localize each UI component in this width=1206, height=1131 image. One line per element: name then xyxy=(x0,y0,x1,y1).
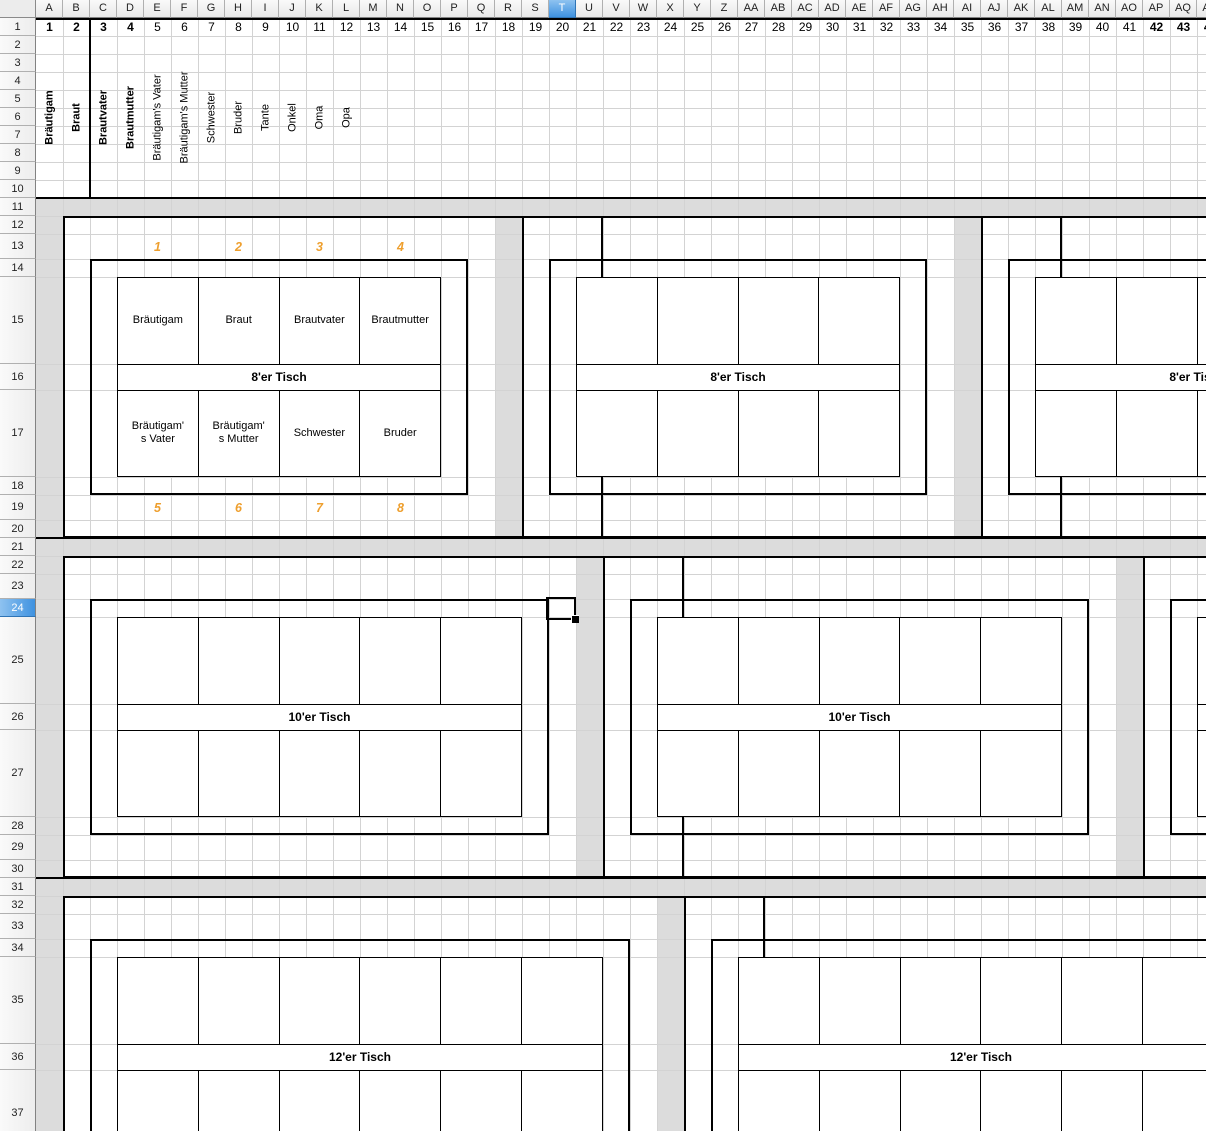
row1-cell-L[interactable]: 12 xyxy=(333,18,360,36)
seat-cell[interactable] xyxy=(1198,278,1206,364)
seat-cell[interactable] xyxy=(441,1071,522,1131)
fill-handle[interactable] xyxy=(571,615,579,623)
seat-cell[interactable] xyxy=(900,731,981,817)
seat-cell[interactable] xyxy=(360,1071,441,1131)
seat-cell[interactable] xyxy=(739,278,820,364)
row-header-35[interactable]: 35 xyxy=(0,957,36,1044)
row-header-31[interactable]: 31 xyxy=(0,878,36,896)
column-header-Z[interactable]: Z xyxy=(711,0,738,18)
row1-cell-C[interactable]: 3 xyxy=(90,18,117,36)
row-header-11[interactable]: 11 xyxy=(0,198,36,216)
seat-cell[interactable] xyxy=(199,1071,280,1131)
seat-cell[interactable] xyxy=(441,731,521,817)
seat-row-bottom xyxy=(118,731,521,817)
row1-cell-AM[interactable]: 39 xyxy=(1062,18,1089,36)
aisle-area xyxy=(36,198,63,1131)
row-header-36[interactable]: 36 xyxy=(0,1044,36,1070)
seat-cell[interactable] xyxy=(1143,958,1206,1044)
row1-cell-AQ[interactable]: 43 xyxy=(1170,18,1197,36)
row-header-5[interactable]: 5 xyxy=(0,90,36,108)
row1-cell-AC[interactable]: 29 xyxy=(792,18,819,36)
guest-column-label[interactable]: Schwester xyxy=(198,36,225,198)
seat-cell[interactable] xyxy=(522,958,602,1044)
seat-row-bottom xyxy=(577,391,899,477)
seat-cell[interactable] xyxy=(1117,278,1198,364)
row-header-16[interactable]: 16 xyxy=(0,364,36,390)
row-header-20[interactable]: 20 xyxy=(0,520,36,538)
column-header-F[interactable]: F xyxy=(171,0,198,18)
column-header-AI[interactable]: AI xyxy=(954,0,981,18)
seat-cell[interactable]: Brautmutter xyxy=(360,278,440,364)
seat-cell[interactable] xyxy=(820,618,901,704)
column-header-AL[interactable]: AL xyxy=(1035,0,1062,18)
seat-row-top xyxy=(1036,278,1206,365)
guest-column-label[interactable]: Brautvater xyxy=(90,36,117,198)
seat-cell[interactable] xyxy=(1198,618,1206,704)
row1-cell-R[interactable]: 18 xyxy=(495,18,522,36)
row-header-29[interactable]: 29 xyxy=(0,835,36,860)
column-header-D[interactable]: D xyxy=(117,0,144,18)
row-header-8[interactable]: 8 xyxy=(0,144,36,162)
row1-cell-AE[interactable]: 31 xyxy=(846,18,873,36)
seat-row-bottom xyxy=(1036,391,1206,477)
seat-cell[interactable] xyxy=(739,1071,820,1131)
seat-cell[interactable] xyxy=(739,958,820,1044)
seat-cell[interactable] xyxy=(658,618,739,704)
seat-row-bottom xyxy=(739,1071,1206,1131)
column-header-L[interactable]: L xyxy=(333,0,360,18)
seat-cell[interactable] xyxy=(820,731,901,817)
seat-cell[interactable] xyxy=(819,391,899,477)
seat-cell[interactable]: Bräutigam' s Vater xyxy=(118,391,199,477)
row1-cell-S[interactable]: 19 xyxy=(522,18,549,36)
cell-cursor xyxy=(546,597,576,620)
seat-cell[interactable] xyxy=(658,391,739,477)
row1-cell-AO[interactable]: 41 xyxy=(1116,18,1143,36)
column-header-O[interactable]: O xyxy=(414,0,441,18)
guest-column-label[interactable]: Onkel xyxy=(279,36,306,198)
table-label[interactable]: 10'er Tisch xyxy=(658,705,1061,731)
row1-cell-W[interactable]: 23 xyxy=(630,18,657,36)
row-header-9[interactable]: 9 xyxy=(0,162,36,180)
row1-cell-H[interactable]: 8 xyxy=(225,18,252,36)
seat-cell[interactable] xyxy=(199,958,280,1044)
row-header-28[interactable]: 28 xyxy=(0,817,36,835)
seat-cell[interactable] xyxy=(981,618,1061,704)
spreadsheet-app: BräutigamBrautBrautvaterBrautmutter8'er … xyxy=(0,0,1206,1131)
seat-cell[interactable] xyxy=(1062,1071,1143,1131)
seat-cell[interactable] xyxy=(199,618,280,704)
row1-cell-T[interactable]: 20 xyxy=(549,18,576,36)
column-header-AR[interactable]: AR xyxy=(1197,0,1206,18)
seat-cell[interactable] xyxy=(280,731,361,817)
row-header-25[interactable]: 25 xyxy=(0,617,36,704)
column-header-AM[interactable]: AM xyxy=(1062,0,1089,18)
column-header-AD[interactable]: AD xyxy=(819,0,846,18)
aisle-area xyxy=(36,538,1206,556)
seat-row-top xyxy=(118,618,521,705)
row-header-19[interactable]: 19 xyxy=(0,495,36,520)
seat-cell[interactable]: Bräutigam' s Mutter xyxy=(199,391,280,477)
seat-cell[interactable] xyxy=(118,731,199,817)
column-header-K[interactable]: K xyxy=(306,0,333,18)
column-header-Y[interactable]: Y xyxy=(684,0,711,18)
row-header-21[interactable]: 21 xyxy=(0,538,36,556)
seat-cell[interactable] xyxy=(900,618,981,704)
seat-row-top: BräutigamBrautBrautvaterBrautmutter xyxy=(118,278,440,365)
row1-cell-AF[interactable]: 32 xyxy=(873,18,900,36)
table-core-2: 8'er Tisch xyxy=(576,277,900,477)
row1-cell-E[interactable]: 5 xyxy=(144,18,171,36)
row-header-34[interactable]: 34 xyxy=(0,939,36,957)
seat-row-bottom xyxy=(118,1071,602,1131)
seat-cell[interactable] xyxy=(1062,958,1143,1044)
column-header-C[interactable]: C xyxy=(90,0,117,18)
table-core-7: 12'er Tisch xyxy=(117,957,603,1131)
seat-cell[interactable] xyxy=(118,958,199,1044)
seat-cell[interactable]: Braut xyxy=(199,278,280,364)
row1-cell-AA[interactable]: 27 xyxy=(738,18,765,36)
column-header-E[interactable]: E xyxy=(144,0,171,18)
table-label[interactable]: 10'er Tisch xyxy=(118,705,521,731)
seat-row-top xyxy=(658,618,1061,705)
seat-cell[interactable] xyxy=(118,1071,199,1131)
column-header-M[interactable]: M xyxy=(360,0,387,18)
seat-cell[interactable] xyxy=(901,1071,982,1131)
row1-cell-AR[interactable]: 44 xyxy=(1197,18,1206,36)
seat-number[interactable]: 2 xyxy=(219,235,259,259)
column-header-AH[interactable]: AH xyxy=(927,0,954,18)
column-header-J[interactable]: J xyxy=(279,0,306,18)
row-header-13[interactable]: 13 xyxy=(0,234,36,259)
column-header-X[interactable]: X xyxy=(657,0,684,18)
row1-cell-AJ[interactable]: 36 xyxy=(981,18,1008,36)
table-label[interactable]: 8'er Tisch xyxy=(1036,365,1206,391)
row1-cell-V[interactable]: 22 xyxy=(603,18,630,36)
table-core-8: 12'er Tisch xyxy=(738,957,1206,1131)
column-header-H[interactable]: H xyxy=(225,0,252,18)
seat-row-bottom xyxy=(658,731,1061,817)
row1-cell-I[interactable]: 9 xyxy=(252,18,279,36)
row1-cell-N[interactable]: 14 xyxy=(387,18,414,36)
seat-cell[interactable] xyxy=(901,958,982,1044)
table-core-4: 10'er Tisch xyxy=(117,617,522,817)
seat-cell[interactable] xyxy=(739,731,820,817)
aisle-area xyxy=(36,878,1206,896)
column-header-S[interactable]: S xyxy=(522,0,549,18)
seat-cell[interactable] xyxy=(360,958,441,1044)
seat-cell[interactable] xyxy=(820,1071,901,1131)
column-header-V[interactable]: V xyxy=(603,0,630,18)
seat-cell[interactable] xyxy=(441,618,521,704)
row-header-3[interactable]: 3 xyxy=(0,54,36,72)
guest-column-label[interactable]: Bruder xyxy=(225,36,252,198)
row1-cell-B[interactable]: 2 xyxy=(63,18,90,36)
row-header-14[interactable]: 14 xyxy=(0,259,36,277)
seat-number[interactable]: 1 xyxy=(138,235,178,259)
table-core-6 xyxy=(1197,617,1206,817)
table-core-5: 10'er Tisch xyxy=(657,617,1062,817)
row1-cell-AD[interactable]: 30 xyxy=(819,18,846,36)
row-header-7[interactable]: 7 xyxy=(0,126,36,144)
seat-cell[interactable] xyxy=(739,618,820,704)
table-label[interactable] xyxy=(1198,705,1206,731)
seat-cell[interactable] xyxy=(981,1071,1062,1131)
seat-cell[interactable] xyxy=(360,731,441,817)
column-header-P[interactable]: P xyxy=(441,0,468,18)
seat-row-top xyxy=(739,958,1206,1045)
column-header-AQ[interactable]: AQ xyxy=(1170,0,1197,18)
seat-number[interactable]: 6 xyxy=(219,496,259,520)
seat-number[interactable]: 5 xyxy=(138,496,178,520)
seat-cell[interactable]: Bruder xyxy=(360,391,440,477)
row-header-10[interactable]: 10 xyxy=(0,180,36,198)
row-header-24[interactable]: 24 xyxy=(0,599,36,617)
column-header-G[interactable]: G xyxy=(198,0,225,18)
column-header-AN[interactable]: AN xyxy=(1089,0,1116,18)
seat-cell[interactable] xyxy=(577,278,658,364)
table-label[interactable]: 12'er Tisch xyxy=(739,1045,1206,1071)
row-header-30[interactable]: 30 xyxy=(0,860,36,878)
row1-cell-O[interactable]: 15 xyxy=(414,18,441,36)
row1-cell-AH[interactable]: 34 xyxy=(927,18,954,36)
aisle-area xyxy=(36,198,1206,216)
row1-cell-Z[interactable]: 26 xyxy=(711,18,738,36)
row1-cell-M[interactable]: 13 xyxy=(360,18,387,36)
row1-cell-AK[interactable]: 37 xyxy=(1008,18,1035,36)
seat-number[interactable]: 7 xyxy=(300,496,340,520)
row-header-18[interactable]: 18 xyxy=(0,477,36,495)
column-header-AO[interactable]: AO xyxy=(1116,0,1143,18)
row1-cell-Q[interactable]: 17 xyxy=(468,18,495,36)
row-header-37[interactable]: 37 xyxy=(0,1070,36,1131)
seat-cell[interactable] xyxy=(1198,731,1206,817)
seat-cell[interactable] xyxy=(658,731,739,817)
row-header-6[interactable]: 6 xyxy=(0,108,36,126)
row1-cell-AI[interactable]: 35 xyxy=(954,18,981,36)
guest-column-label[interactable]: Bräutigam's Vater xyxy=(144,36,171,198)
seat-cell[interactable] xyxy=(739,391,820,477)
row-header-26[interactable]: 26 xyxy=(0,704,36,730)
table-label[interactable]: 8'er Tisch xyxy=(118,365,440,391)
guest-column-label[interactable]: Bräutigam xyxy=(36,36,63,198)
column-header-N[interactable]: N xyxy=(387,0,414,18)
seat-number[interactable]: 8 xyxy=(381,496,421,520)
row-header-27[interactable]: 27 xyxy=(0,730,36,817)
row1-cell-K[interactable]: 11 xyxy=(306,18,333,36)
seat-cell[interactable] xyxy=(1036,278,1117,364)
row1-cell-U[interactable]: 21 xyxy=(576,18,603,36)
column-header-T[interactable]: T xyxy=(549,0,576,18)
column-header-AF[interactable]: AF xyxy=(873,0,900,18)
seat-number[interactable]: 4 xyxy=(381,235,421,259)
seat-cell[interactable] xyxy=(360,618,441,704)
row-header-1[interactable]: 1 xyxy=(0,18,36,36)
seat-cell[interactable] xyxy=(522,1071,602,1131)
row1-cell-X[interactable]: 24 xyxy=(657,18,684,36)
seat-row-top xyxy=(1198,618,1206,705)
row-header-22[interactable]: 22 xyxy=(0,556,36,574)
seat-cell[interactable]: Brautvater xyxy=(280,278,361,364)
column-header-AK[interactable]: AK xyxy=(1008,0,1035,18)
seat-cell[interactable] xyxy=(280,1071,361,1131)
guest-column-label[interactable]: Bräutigam's Mutter xyxy=(171,36,198,198)
seat-cell[interactable] xyxy=(819,278,899,364)
seat-row-top xyxy=(118,958,602,1045)
row-header-23[interactable]: 23 xyxy=(0,574,36,599)
column-header-AE[interactable]: AE xyxy=(846,0,873,18)
row1-cell-P[interactable]: 16 xyxy=(441,18,468,36)
row-header-32[interactable]: 32 xyxy=(0,896,36,914)
row-header-2[interactable]: 2 xyxy=(0,36,36,54)
seat-cell[interactable] xyxy=(1198,391,1206,477)
seat-cell[interactable] xyxy=(1143,1071,1206,1131)
column-header-Q[interactable]: Q xyxy=(468,0,495,18)
row1-cell-J[interactable]: 10 xyxy=(279,18,306,36)
column-header-R[interactable]: R xyxy=(495,0,522,18)
row-header-33[interactable]: 33 xyxy=(0,914,36,939)
table-label[interactable]: 12'er Tisch xyxy=(118,1045,602,1071)
seat-cell[interactable] xyxy=(1117,391,1198,477)
column-header-W[interactable]: W xyxy=(630,0,657,18)
seat-row-bottom: Bräutigam' s VaterBräutigam' s MutterSch… xyxy=(118,391,440,477)
row1-cell-AP[interactable]: 42 xyxy=(1143,18,1170,36)
row1-cell-AN[interactable]: 40 xyxy=(1089,18,1116,36)
row1-cell-AB[interactable]: 28 xyxy=(765,18,792,36)
seat-cell[interactable] xyxy=(658,278,739,364)
column-header-AA[interactable]: AA xyxy=(738,0,765,18)
row1-cell-G[interactable]: 7 xyxy=(198,18,225,36)
seat-cell[interactable] xyxy=(981,958,1062,1044)
seat-cell[interactable] xyxy=(280,958,361,1044)
column-header-AP[interactable]: AP xyxy=(1143,0,1170,18)
row1-cell-AL[interactable]: 38 xyxy=(1035,18,1062,36)
guest-column-label[interactable]: Oma xyxy=(306,36,333,198)
guest-column-label[interactable]: Tante xyxy=(252,36,279,198)
column-header-AB[interactable]: AB xyxy=(765,0,792,18)
row-header-17[interactable]: 17 xyxy=(0,390,36,477)
seat-cell[interactable] xyxy=(441,958,522,1044)
column-header-AC[interactable]: AC xyxy=(792,0,819,18)
column-header-U[interactable]: U xyxy=(576,0,603,18)
seat-cell[interactable] xyxy=(1036,391,1117,477)
select-all-corner[interactable] xyxy=(0,0,36,18)
seat-cell[interactable]: Bräutigam xyxy=(118,278,199,364)
seat-row-top xyxy=(577,278,899,365)
column-header-A[interactable]: A xyxy=(36,0,63,18)
row1-cell-AG[interactable]: 33 xyxy=(900,18,927,36)
row1-cell-Y[interactable]: 25 xyxy=(684,18,711,36)
seat-cell[interactable] xyxy=(280,618,361,704)
seat-cell[interactable]: Schwester xyxy=(280,391,361,477)
column-header-B[interactable]: B xyxy=(63,0,90,18)
row-header-4[interactable]: 4 xyxy=(0,72,36,90)
seat-cell[interactable] xyxy=(820,958,901,1044)
guest-column-label[interactable]: Opa xyxy=(333,36,360,198)
column-header-AJ[interactable]: AJ xyxy=(981,0,1008,18)
row1-cell-D[interactable]: 4 xyxy=(117,18,144,36)
seat-cell[interactable] xyxy=(118,618,199,704)
column-header-I[interactable]: I xyxy=(252,0,279,18)
guest-column-label[interactable]: Braut xyxy=(63,36,90,198)
row1-cell-F[interactable]: 6 xyxy=(171,18,198,36)
seat-cell[interactable] xyxy=(981,731,1061,817)
table-label[interactable]: 8'er Tisch xyxy=(577,365,899,391)
table-core-1: BräutigamBrautBrautvaterBrautmutter8'er … xyxy=(117,277,441,477)
table-core-3: 8'er Tisch xyxy=(1035,277,1206,477)
seat-cell[interactable] xyxy=(577,391,658,477)
row1-cell-A[interactable]: 1 xyxy=(36,18,63,36)
seat-number[interactable]: 3 xyxy=(300,235,340,259)
row-header-12[interactable]: 12 xyxy=(0,216,36,234)
column-header-AG[interactable]: AG xyxy=(900,0,927,18)
guest-column-label[interactable]: Brautmutter xyxy=(117,36,144,198)
seat-row-bottom xyxy=(1198,731,1206,817)
row-header-15[interactable]: 15 xyxy=(0,277,36,364)
seat-cell[interactable] xyxy=(199,731,280,817)
